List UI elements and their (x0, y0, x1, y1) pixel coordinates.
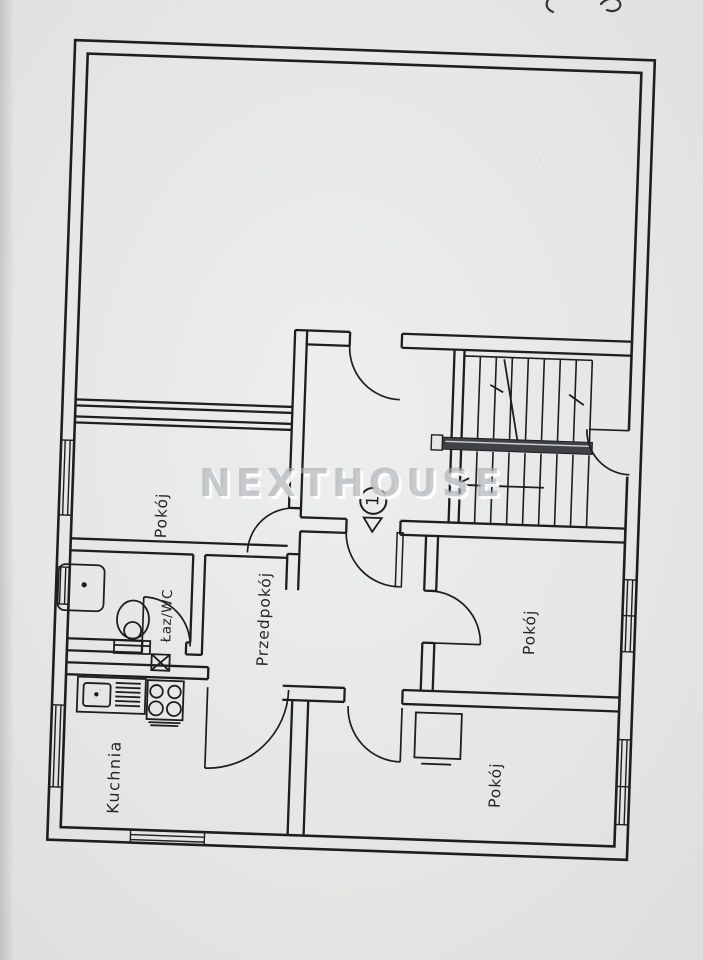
watermark: NEXTHOUSE NEXTHOUSE (199, 461, 508, 508)
room-label-przedpokoj: Przedpokój (253, 572, 274, 667)
floor-plan-photo: 1 Pokój Łaz/WC Przedpokój Kuchnia Pokój … (0, 0, 703, 960)
watermark-text: NEXTHOUSE (199, 461, 505, 505)
room-label-pokoj-middle-right: Pokój (520, 609, 540, 655)
room-label-lazienka: Łaz/WC (158, 589, 176, 644)
room-label-pokoj-left: Pokój (152, 492, 172, 538)
room-label-kuchnia: Kuchnia (103, 740, 125, 814)
floor-plan-svg: 1 Pokój Łaz/WC Przedpokój Kuchnia Pokój … (0, 0, 703, 960)
room-label-pokoj-bottom-right: Pokój (486, 762, 506, 808)
paper-edge-shadow (0, 0, 14, 960)
